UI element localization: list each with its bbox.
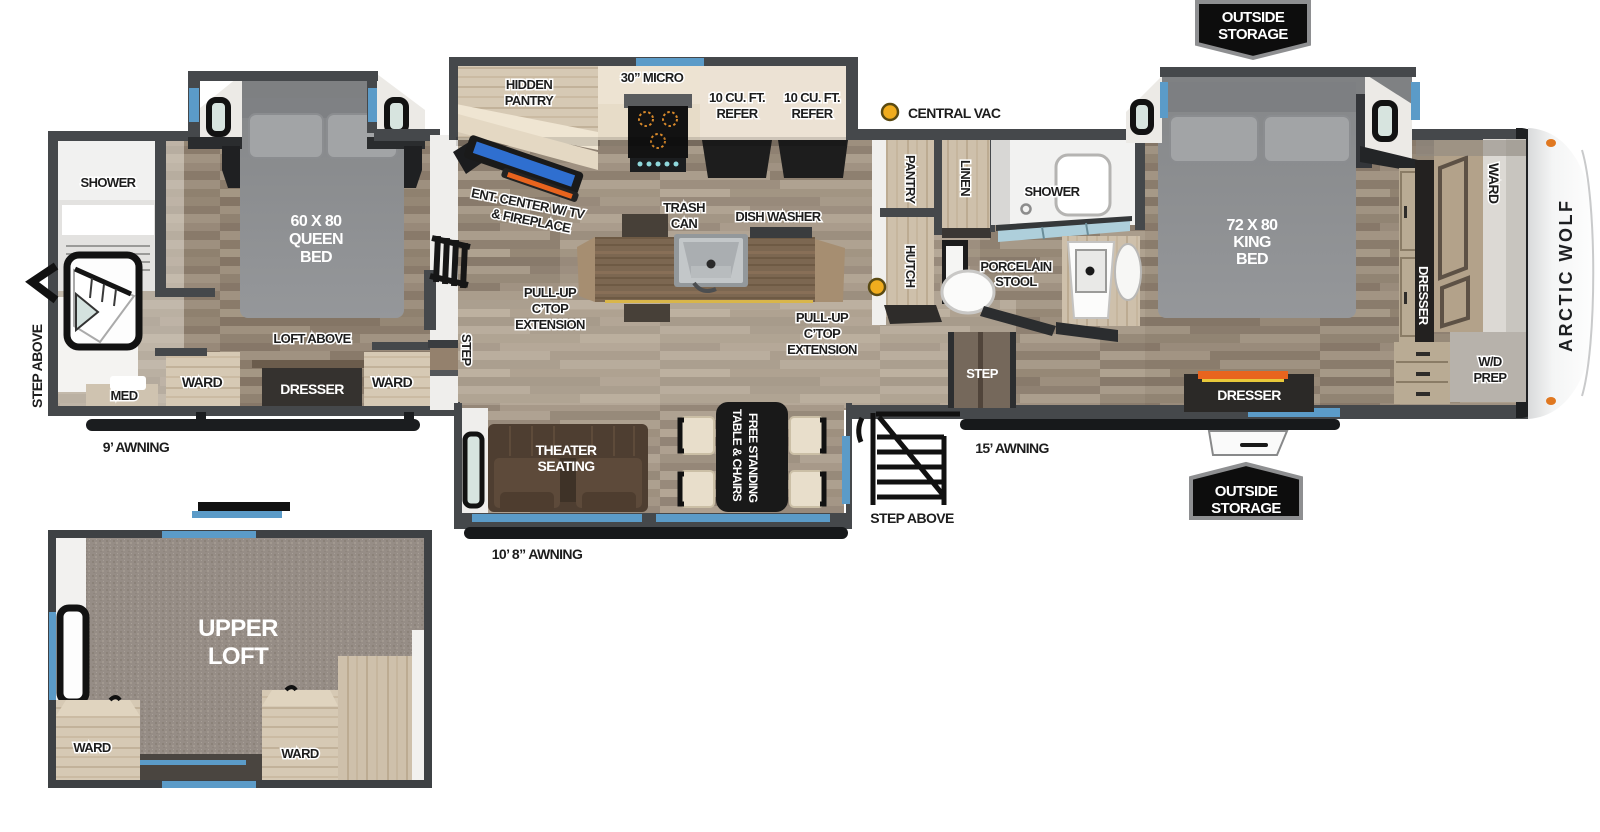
svg-text:PANTRY: PANTRY (903, 155, 918, 204)
svg-text:HIDDEN: HIDDEN (506, 77, 552, 92)
svg-text:TRASH: TRASH (663, 200, 705, 215)
svg-text:SHOWER: SHOWER (1025, 184, 1081, 199)
svg-text:WARD: WARD (281, 746, 319, 761)
svg-text:STOOL: STOOL (995, 274, 1037, 289)
svg-text:LOFT: LOFT (208, 643, 269, 670)
svg-text:PORCELAIN: PORCELAIN (980, 259, 1051, 274)
svg-text:DISH WASHER: DISH WASHER (735, 209, 821, 224)
svg-text:STEP: STEP (459, 334, 474, 366)
svg-text:72 X 80: 72 X 80 (1227, 217, 1279, 234)
svg-text:STORAGE: STORAGE (1211, 500, 1281, 517)
svg-text:STEP: STEP (966, 366, 998, 381)
svg-text:QUEEN: QUEEN (289, 231, 343, 248)
svg-text:DRESSER: DRESSER (280, 381, 344, 397)
svg-text:EXTENSION: EXTENSION (787, 342, 857, 357)
svg-text:W/D: W/D (1478, 354, 1502, 369)
svg-text:PANTRY: PANTRY (505, 93, 554, 108)
svg-text:BED: BED (1236, 251, 1268, 268)
svg-text:LINEN: LINEN (958, 160, 973, 196)
svg-text:CENTRAL VAC: CENTRAL VAC (908, 105, 1001, 121)
svg-text:STORAGE: STORAGE (1218, 26, 1288, 43)
svg-text:9’ AWNING: 9’ AWNING (103, 439, 170, 455)
svg-text:DRESSER: DRESSER (1416, 266, 1431, 326)
svg-text:EXTENSION: EXTENSION (515, 317, 585, 332)
svg-text:WARD: WARD (73, 740, 111, 755)
svg-text:10 CU. FT.: 10 CU. FT. (784, 90, 840, 105)
svg-text:UPPER: UPPER (198, 615, 278, 642)
svg-text:PULL-UP: PULL-UP (524, 285, 577, 300)
svg-text:WARD: WARD (182, 374, 223, 390)
svg-text:FREE STANDING: FREE STANDING (746, 413, 760, 503)
svg-text:OUTSIDE: OUTSIDE (1222, 9, 1285, 26)
svg-text:10’ 8” AWNING: 10’ 8” AWNING (492, 546, 583, 562)
svg-text:CAN: CAN (671, 216, 698, 231)
svg-text:ARCTIC WOLF: ARCTIC WOLF (1556, 199, 1576, 352)
svg-text:10 CU. FT.: 10 CU. FT. (709, 90, 765, 105)
svg-text:60 X 80: 60 X 80 (291, 213, 343, 230)
svg-text:THEATER: THEATER (536, 442, 597, 458)
svg-text:15’ AWNING: 15’ AWNING (975, 440, 1049, 456)
svg-text:REFER: REFER (791, 106, 833, 121)
svg-text:STEP ABOVE: STEP ABOVE (870, 510, 954, 526)
svg-text:REFER: REFER (716, 106, 758, 121)
svg-text:OUTSIDE: OUTSIDE (1215, 483, 1278, 500)
svg-text:WARD: WARD (372, 374, 413, 390)
svg-text:BED: BED (300, 249, 332, 266)
svg-text:SHOWER: SHOWER (81, 175, 137, 190)
svg-text:STEP ABOVE: STEP ABOVE (29, 324, 45, 408)
svg-text:HUTCH: HUTCH (903, 245, 918, 288)
svg-text:SEATING: SEATING (538, 458, 596, 474)
svg-text:KING: KING (1233, 234, 1271, 251)
svg-text:LOFT ABOVE: LOFT ABOVE (273, 331, 351, 346)
svg-text:PREP: PREP (1473, 370, 1507, 385)
svg-text:MED: MED (110, 388, 137, 403)
svg-text:C’TOP: C’TOP (532, 301, 569, 316)
svg-text:30” MICRO: 30” MICRO (621, 70, 684, 85)
svg-text:WARD: WARD (1486, 163, 1502, 204)
svg-text:TABLE & CHAIRS: TABLE & CHAIRS (730, 409, 744, 502)
svg-text:C’TOP: C’TOP (804, 326, 841, 341)
svg-text:DRESSER: DRESSER (1217, 387, 1281, 403)
svg-text:PULL-UP: PULL-UP (796, 310, 849, 325)
